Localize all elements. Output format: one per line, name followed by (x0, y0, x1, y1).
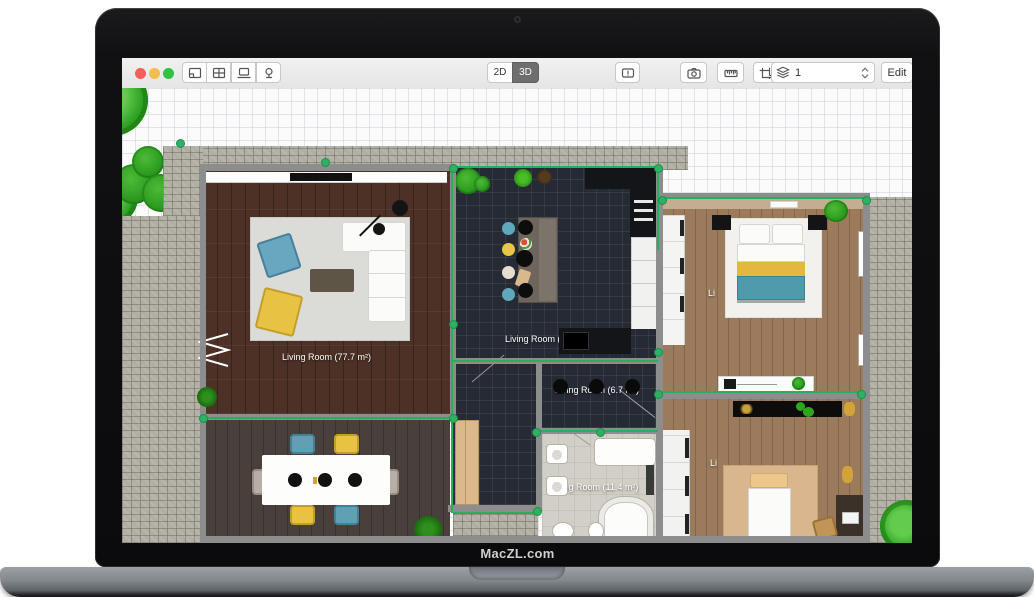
potted-plant[interactable] (824, 200, 848, 222)
bathtub[interactable] (594, 438, 656, 466)
selection-handle[interactable] (862, 196, 871, 205)
wardrobe-handle (685, 438, 689, 458)
potted-plant[interactable] (792, 377, 805, 390)
wall[interactable] (200, 164, 206, 543)
selection-handle[interactable] (654, 390, 663, 399)
oven[interactable] (634, 195, 653, 221)
camera-icon (687, 67, 701, 79)
webcam-icon (514, 16, 521, 23)
bar-stool-cream[interactable] (502, 266, 515, 279)
bed-blanket-yellow[interactable] (737, 262, 805, 276)
dining-chair-yellow[interactable] (334, 434, 359, 454)
selection-line[interactable] (453, 360, 658, 362)
floorplan-canvas[interactable]: Living Room (77.7 m²) (122, 88, 912, 543)
tree-tool-button[interactable] (256, 62, 281, 83)
traffic-close-button[interactable] (135, 68, 146, 79)
selection-line[interactable] (451, 166, 453, 513)
selection-handle[interactable] (658, 196, 667, 205)
double-bed[interactable] (737, 244, 805, 262)
tv-unit[interactable] (290, 173, 352, 181)
selection-line[interactable] (662, 391, 863, 393)
patio-paving[interactable] (163, 146, 203, 216)
selection-handle[interactable] (654, 164, 663, 173)
laptop-lid: 2D 3D 1 Edit (95, 8, 940, 567)
decor-gold (739, 404, 754, 414)
pillow[interactable] (772, 224, 803, 244)
ceiling-lamp[interactable] (589, 379, 604, 394)
laptop-on-desk[interactable] (842, 512, 859, 524)
selection-handle[interactable] (449, 320, 458, 329)
dresser-detail (737, 384, 777, 385)
room-label: Li (708, 288, 715, 298)
lid-notch (469, 567, 565, 580)
wall-sconce[interactable] (844, 402, 855, 416)
floor-lamp-shade[interactable] (392, 200, 408, 216)
selection-handle[interactable] (449, 164, 458, 173)
patio-paving[interactable] (868, 197, 912, 543)
tree-icon (262, 67, 276, 79)
bar-stool-teal[interactable] (502, 222, 515, 235)
app-toolbar: 2D 3D 1 Edit (122, 58, 912, 89)
selection-handle[interactable] (176, 139, 185, 148)
wall[interactable] (200, 536, 863, 543)
selection-handle[interactable] (533, 507, 542, 516)
wall[interactable] (662, 392, 863, 399)
bed-blanket-teal[interactable] (737, 276, 805, 300)
radiator[interactable] (646, 465, 654, 495)
selection-line[interactable] (453, 166, 658, 168)
selection-line[interactable] (657, 166, 659, 250)
plate[interactable] (318, 473, 332, 487)
selection-handle[interactable] (654, 348, 663, 357)
edit-button[interactable]: Edit (881, 62, 912, 83)
island-sink[interactable] (518, 220, 533, 235)
view-2d-button[interactable]: 2D (487, 62, 513, 83)
selection-handle[interactable] (449, 414, 458, 423)
traffic-minimize-button[interactable] (149, 68, 160, 79)
floorplan-icon (188, 67, 202, 79)
selection-handle[interactable] (199, 414, 208, 423)
ruler-button[interactable] (717, 62, 744, 83)
room-label: Living Room (3 (505, 334, 566, 344)
floorplan-tool-button[interactable] (182, 62, 207, 83)
selection-handle[interactable] (596, 428, 605, 437)
wardrobe-handle (685, 514, 689, 534)
coffee-table[interactable] (310, 269, 354, 292)
dining-chair-teal[interactable] (290, 434, 315, 454)
laptop-screen: 2D 3D 1 Edit (122, 58, 912, 543)
console-cabinet[interactable] (455, 420, 479, 505)
wardrobe-handle (680, 296, 684, 312)
room-label: Li (710, 458, 717, 468)
kitchen-counter[interactable] (585, 168, 658, 189)
wall[interactable] (863, 197, 870, 543)
kitchen-island-top (539, 219, 556, 301)
candle[interactable] (313, 477, 317, 484)
layers-select[interactable]: 1 (771, 62, 875, 83)
laptop-base (0, 567, 1034, 597)
single-bed[interactable] (748, 488, 791, 538)
display-icon (237, 67, 251, 79)
wardrobe-handle (685, 476, 689, 496)
display-tool-button[interactable] (231, 62, 256, 83)
plant-decor (803, 407, 814, 417)
bed-footboard (737, 300, 805, 303)
island-sink[interactable] (518, 283, 533, 298)
fruit-bowl[interactable] (520, 238, 532, 250)
dried-plant[interactable] (537, 170, 552, 184)
wardrobe-handle (680, 258, 684, 274)
bathroom-sink[interactable] (546, 476, 568, 496)
dining-chair-yellow[interactable] (290, 505, 315, 525)
grid-tool-button[interactable] (206, 62, 231, 83)
selection-line[interactable] (662, 197, 864, 199)
wall[interactable] (448, 505, 540, 512)
pillow[interactable] (750, 473, 788, 488)
ceiling-lamp[interactable] (625, 379, 640, 394)
dining-chair-teal[interactable] (334, 505, 359, 525)
dresser-item (724, 379, 736, 389)
bathroom-sink[interactable] (546, 444, 568, 464)
potted-plant[interactable] (197, 387, 217, 407)
sofa[interactable] (368, 250, 406, 322)
tree[interactable] (122, 88, 148, 136)
camera-button[interactable] (680, 62, 707, 83)
cabinet-column[interactable] (631, 237, 658, 329)
layers-value: 1 (795, 67, 801, 79)
patio-paving[interactable] (122, 216, 203, 543)
selection-line[interactable] (453, 512, 540, 514)
layers-icon (776, 66, 790, 79)
nightstand[interactable] (808, 215, 827, 230)
hallway-floor[interactable] (538, 362, 658, 428)
cooktop[interactable] (563, 332, 589, 350)
wall-shelf[interactable] (770, 201, 798, 208)
island-cooktop[interactable] (516, 250, 533, 267)
view-3d-button[interactable]: 3D (512, 62, 539, 83)
bar-stool-yellow[interactable] (502, 243, 515, 256)
room-label: Living Room (77.7 m²) (203, 352, 450, 362)
annotation-icon (621, 67, 635, 79)
brand-label: MacZL.com (95, 546, 940, 561)
nightstand[interactable] (712, 215, 731, 230)
selection-line[interactable] (203, 417, 453, 419)
fern-plant[interactable] (514, 169, 532, 187)
selection-handle[interactable] (857, 390, 866, 399)
selection-handle[interactable] (532, 428, 541, 437)
pillow[interactable] (739, 224, 770, 244)
wall-sconce[interactable] (842, 466, 853, 483)
potted-plant[interactable] (474, 176, 490, 192)
traffic-zoom-button[interactable] (163, 68, 174, 79)
wardrobe-handle (680, 220, 684, 236)
bar-stool-teal[interactable] (502, 288, 515, 301)
floor-lamp-base[interactable] (373, 223, 385, 235)
selection-handle[interactable] (321, 158, 330, 167)
ruler-icon (724, 67, 738, 79)
ceiling-lamp[interactable] (553, 379, 568, 394)
wall[interactable] (536, 362, 542, 512)
stepper-chevrons-icon[interactable] (860, 66, 870, 80)
plate[interactable] (288, 473, 302, 487)
plate[interactable] (348, 473, 362, 487)
annotation-button[interactable] (615, 62, 640, 83)
grid-icon (212, 67, 226, 79)
